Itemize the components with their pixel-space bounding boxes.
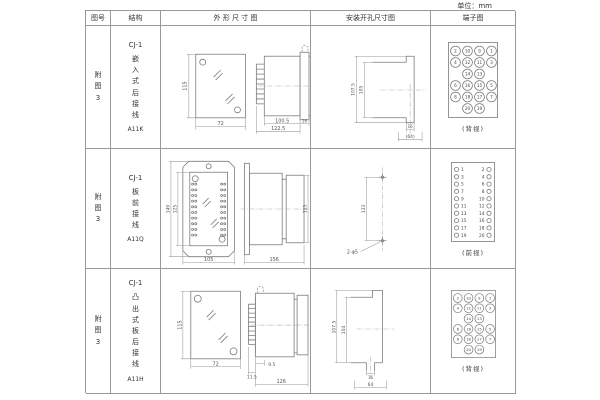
install-svg-row-1: 107.5 105 16 (64): [311, 26, 430, 149]
svg-text:15: 15: [476, 327, 481, 331]
dim-cutout-outer: 107.5: [331, 320, 337, 333]
svg-text:18: 18: [466, 338, 471, 342]
header-terminal: 端子图: [431, 11, 516, 26]
svg-text:18: 18: [465, 95, 471, 100]
svg-text:20: 20: [479, 232, 485, 238]
svg-text:8: 8: [456, 338, 459, 342]
svg-text:11: 11: [461, 203, 467, 209]
hatch-marks: [207, 310, 228, 343]
outline-drawing-row-1: 115 72 100.5 16 122.5: [161, 26, 311, 149]
header-install: 安装开孔尺寸图: [311, 11, 431, 26]
svg-text:12: 12: [465, 60, 471, 65]
svg-text:2: 2: [456, 296, 459, 300]
dim-cutout-width: 64: [368, 382, 374, 388]
svg-text:17: 17: [476, 338, 481, 342]
dim-front-height: 115: [177, 320, 183, 329]
structure-text-row-2: 板前接线: [132, 187, 139, 232]
code-row-2: A11Q: [127, 236, 143, 243]
install-drawing-row-3: 107.5 104 16 64: [311, 269, 431, 394]
header-figure-no: 图号: [86, 11, 111, 26]
svg-text:3: 3: [488, 307, 491, 311]
terminal-caption-row-2: (前视): [462, 247, 484, 257]
install-svg-row-2: 133 2-φ5: [311, 149, 430, 269]
svg-text:5: 5: [488, 327, 491, 331]
dim-hole-spacing: 133: [361, 204, 367, 213]
svg-text:19: 19: [476, 348, 481, 352]
svg-text:4: 4: [456, 307, 459, 311]
lifting-hook: [302, 45, 308, 52]
svg-text:4: 4: [454, 60, 457, 65]
dim-side-body: 100.5: [275, 118, 289, 124]
svg-text:6: 6: [454, 83, 457, 88]
lifting-hook: [257, 286, 263, 293]
terminal-diagram-row-2: 1234567891011121314151617181920: [450, 161, 496, 243]
dim-cutout-outer: 107.5: [351, 82, 357, 95]
dim-cutout-inner: 105: [359, 85, 365, 94]
dim-pin2: 11.5: [247, 375, 257, 381]
code-row-1: A11K: [128, 126, 144, 133]
dim-front-height-inner: 125: [172, 204, 178, 213]
svg-text:6: 6: [482, 181, 485, 187]
structure-text-row-3: 凸出式板后接线: [132, 292, 139, 370]
svg-text:14: 14: [479, 210, 485, 216]
cutout-profile: [351, 290, 383, 370]
svg-text:17: 17: [477, 95, 483, 100]
hatch-marks: [214, 70, 235, 104]
svg-text:13: 13: [461, 210, 467, 216]
svg-text:5: 5: [490, 83, 493, 88]
install-svg-row-3: 107.5 104 16 64: [311, 269, 430, 394]
dim-side-total: 126: [276, 379, 285, 385]
dim-side-length: 156: [270, 257, 279, 263]
header-outline: 外 形 尺 寸 图: [161, 11, 311, 26]
structure-row-2: CJ-1 板前接线 A11Q: [111, 149, 161, 269]
svg-text:1: 1: [461, 167, 464, 173]
terminal-dot-columns: [192, 183, 226, 236]
dim-side-flange: 16: [302, 118, 308, 123]
centerline: [357, 329, 395, 379]
svg-text:4: 4: [482, 174, 485, 180]
install-drawing-row-1: 107.5 105 16 (64): [311, 26, 431, 149]
structure-text-row-1: 嵌入式后接线: [132, 54, 139, 121]
code-row-3: A11H: [127, 376, 143, 383]
svg-text:15: 15: [461, 218, 467, 224]
svg-text:1: 1: [488, 296, 491, 300]
terminal-cell-row-1: 2109141211314136161558181772019 (背视): [431, 26, 516, 149]
terminal-caption-row-3: (背视): [462, 363, 484, 373]
dim-pin: 9.5: [268, 362, 275, 368]
svg-text:8: 8: [454, 95, 457, 100]
dim-slot-width: 16: [368, 375, 374, 380]
svg-text:12: 12: [466, 307, 471, 311]
dim-cutout-inner: 104: [341, 326, 347, 335]
dim-slot-width: 16: [408, 124, 414, 129]
model-row-3: CJ-1: [129, 279, 143, 287]
terminal-cell-row-3: 2109141211314136161558181772019 (背视): [431, 269, 516, 394]
dim-front-height: 149: [165, 204, 171, 213]
figure-no-row-1: 附图3: [86, 26, 111, 149]
svg-text:10: 10: [465, 49, 471, 54]
svg-text:20: 20: [466, 348, 471, 352]
svg-text:7: 7: [490, 95, 493, 100]
svg-text:15: 15: [477, 83, 483, 88]
hole-spec-label: 2-φ5: [347, 249, 358, 255]
svg-text:6: 6: [456, 327, 459, 331]
terminal-diagram-row-3: 2109141211314136161558181772019: [450, 289, 497, 359]
centerline: [380, 84, 426, 136]
svg-text:8: 8: [482, 189, 485, 195]
outline-drawing-row-3: 115 72 9.5 11.5 126: [161, 269, 311, 394]
figure-no-text-row-1: 附图3: [95, 70, 102, 104]
figure-no-text-row-3: 附图3: [95, 314, 102, 348]
svg-text:14: 14: [465, 72, 471, 77]
hatch-marks: [203, 198, 219, 228]
svg-text:12: 12: [479, 203, 485, 209]
terminal-caption-row-1: (背视): [462, 123, 484, 133]
install-drawing-row-2: 133 2-φ5: [311, 149, 431, 269]
svg-text:9: 9: [478, 296, 481, 300]
svg-text:16: 16: [466, 327, 471, 331]
svg-text:7: 7: [461, 189, 464, 195]
dim-cutout-width: (64): [406, 134, 415, 140]
structure-row-3: CJ-1 凸出式板后接线 A11H: [111, 269, 161, 394]
header-structure: 结构: [111, 11, 161, 26]
figure-no-row-2: 附图3: [86, 149, 111, 269]
figure-no-text-row-2: 附图3: [95, 192, 102, 226]
svg-text:10: 10: [479, 196, 485, 202]
svg-text:14: 14: [466, 317, 471, 321]
svg-text:1: 1: [490, 49, 493, 54]
dim-side-height: 115: [303, 204, 309, 213]
dim-front-width: 72: [217, 121, 223, 127]
svg-text:16: 16: [465, 83, 471, 88]
svg-text:7: 7: [488, 338, 491, 342]
outline-svg-row-1: 115 72 100.5 16 122.5: [161, 26, 310, 149]
outline-svg-row-3: 115 72 9.5 11.5 126: [161, 269, 310, 394]
svg-text:13: 13: [477, 72, 483, 77]
spec-table: 图号 结构 外 形 尺 寸 图 安装开孔尺寸图 端子图 附图3 CJ-1 嵌入式…: [85, 10, 515, 393]
cutout-profile: [372, 56, 414, 122]
svg-text:18: 18: [479, 225, 485, 231]
model-row-2: CJ-1: [129, 174, 143, 182]
svg-text:2: 2: [482, 167, 485, 173]
pin-comb: [256, 64, 264, 104]
svg-text:10: 10: [466, 296, 471, 300]
svg-text:11: 11: [476, 307, 481, 311]
outline-drawing-row-2: 149 125 105 156 115: [161, 149, 311, 269]
figure-no-row-3: 附图3: [86, 269, 111, 394]
dim-front-width: 105: [204, 257, 213, 263]
svg-text:2: 2: [454, 49, 457, 54]
svg-text:3: 3: [461, 174, 464, 180]
dim-side-total: 122.5: [271, 126, 285, 132]
dim-front-width: 72: [212, 361, 218, 367]
svg-text:9: 9: [478, 49, 481, 54]
svg-text:16: 16: [479, 218, 485, 224]
dim-front-height: 115: [182, 81, 188, 90]
svg-text:20: 20: [465, 106, 471, 111]
svg-text:19: 19: [477, 106, 483, 111]
structure-row-1: CJ-1 嵌入式后接线 A11K: [111, 26, 161, 149]
terminal-diagram-row-1: 2109141211314136161558181772019: [447, 41, 499, 119]
svg-text:19: 19: [461, 232, 467, 238]
terminal-cell-row-2: 1234567891011121314151617181920 (前视): [431, 149, 516, 269]
model-row-1: CJ-1: [129, 41, 143, 49]
svg-text:13: 13: [476, 317, 481, 321]
outline-svg-row-2: 149 125 105 156 115: [161, 149, 310, 269]
svg-text:3: 3: [490, 60, 493, 65]
svg-text:11: 11: [477, 60, 483, 65]
svg-text:9: 9: [461, 196, 464, 202]
svg-text:17: 17: [461, 225, 467, 231]
svg-text:5: 5: [461, 181, 464, 187]
